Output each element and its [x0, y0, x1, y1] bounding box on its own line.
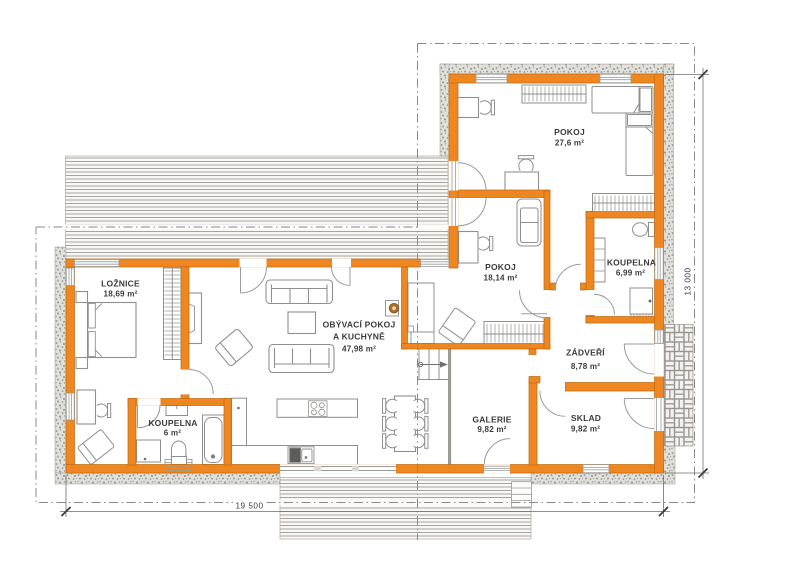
svg-text:OBÝVACÍ POKOJ: OBÝVACÍ POKOJ — [323, 319, 396, 330]
svg-text:27,6 m²: 27,6 m² — [555, 139, 584, 148]
svg-text:POKOJ: POKOJ — [554, 127, 585, 137]
svg-text:18,69 m²: 18,69 m² — [104, 290, 138, 299]
svg-text:6 m²: 6 m² — [164, 429, 182, 438]
svg-text:SKLAD: SKLAD — [571, 413, 601, 423]
svg-text:LOŽNICE: LOŽNICE — [101, 278, 140, 289]
svg-text:13 000: 13 000 — [684, 267, 693, 295]
svg-text:47,98 m²: 47,98 m² — [342, 345, 376, 354]
svg-text:KOUPELNA: KOUPELNA — [607, 258, 656, 268]
svg-text:KOUPELNA: KOUPELNA — [148, 418, 197, 428]
svg-text:ZÁDVEŘÍ: ZÁDVEŘÍ — [566, 347, 605, 358]
svg-text:8,78 m²: 8,78 m² — [571, 362, 600, 371]
svg-text:6,99 m²: 6,99 m² — [616, 269, 645, 278]
svg-text:19 500: 19 500 — [235, 502, 263, 511]
svg-text:9,82 m²: 9,82 m² — [571, 425, 600, 434]
svg-text:18,14 m²: 18,14 m² — [484, 274, 518, 283]
svg-text:POKOJ: POKOJ — [485, 262, 516, 272]
svg-text:GALERIE: GALERIE — [472, 415, 511, 425]
svg-text:9,82 m²: 9,82 m² — [477, 425, 506, 434]
svg-text:A KUCHYNĚ: A KUCHYNĚ — [333, 331, 385, 342]
